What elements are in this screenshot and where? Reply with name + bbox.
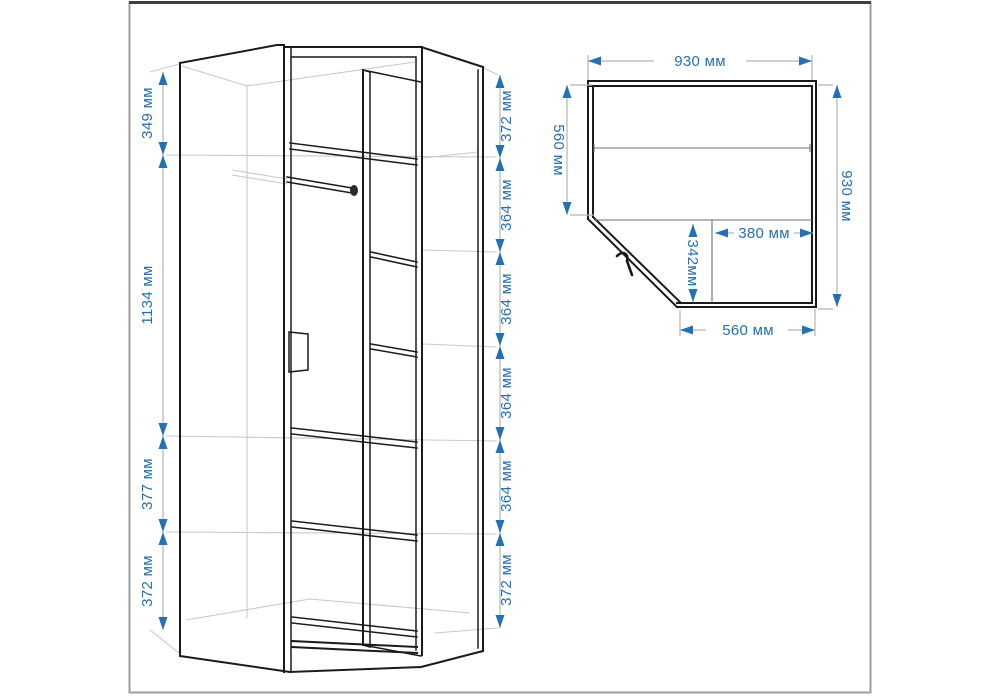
plan-bottom-dimension: 560 мм	[680, 309, 815, 339]
dim-label-left-1: 1134 мм	[139, 265, 156, 324]
dim-label-right-2: 364 мм	[498, 273, 515, 325]
cabinet-outline	[180, 45, 483, 672]
right-dimension-arrows	[496, 75, 505, 628]
dim-label-left-2: 377 мм	[139, 458, 156, 510]
dim-label-bottom-width: 560 мм	[722, 322, 774, 339]
dim-label-right-depth: 930 мм	[838, 170, 855, 222]
right-dimension-chain: 372 мм 364 мм 364 мм 364 мм 364 мм 372 м…	[496, 75, 516, 628]
hidden-lines	[150, 62, 498, 653]
plan-top-dimension: 930 мм	[588, 53, 812, 80]
plan-inner-depth-dimension: 342мм	[684, 224, 701, 302]
dim-label-left-3: 372 мм	[139, 555, 156, 607]
plan-inner-width-dimension: 380 мм	[715, 225, 813, 242]
screenshot-canvas: 349 мм 1134 мм 377 мм 372 мм 372 мм 364 …	[0, 0, 1000, 700]
plan-right-dimension: 930 мм	[818, 85, 855, 309]
plan-left-dimension-line	[567, 85, 594, 215]
dim-label-right-4: 364 мм	[498, 460, 515, 512]
plan-view: 930 мм 560 мм 930 мм 380 мм 342мм	[550, 53, 855, 339]
dim-label-right-3: 364 мм	[498, 367, 515, 419]
plan-interior-lines	[594, 144, 812, 303]
hanging-rod-end-cap	[350, 185, 358, 196]
front-view: 349 мм 1134 мм 377 мм 372 мм 372 мм 364 …	[139, 45, 515, 672]
dim-label-inner-width: 380 мм	[738, 225, 790, 242]
dimension-drawing: 349 мм 1134 мм 377 мм 372 мм 372 мм 364 …	[0, 0, 1000, 700]
dim-label-inner-depth: 342мм	[684, 239, 701, 286]
cabinet-details	[289, 47, 478, 671]
plan-right-dimension-line	[818, 85, 837, 309]
left-dimension-chain: 349 мм 1134 мм 377 мм 372 мм	[139, 72, 168, 630]
dim-label-right-0: 372 мм	[498, 90, 515, 142]
hanging-rod	[287, 177, 352, 193]
dim-label-top-width: 930 мм	[674, 53, 726, 70]
plan-walls	[588, 81, 816, 307]
dim-label-left-depth: 560 мм	[550, 124, 567, 176]
dim-label-right-1: 364 мм	[498, 179, 515, 231]
dim-label-left-0: 349 мм	[139, 87, 156, 139]
dim-label-right-5: 372 мм	[498, 554, 515, 606]
